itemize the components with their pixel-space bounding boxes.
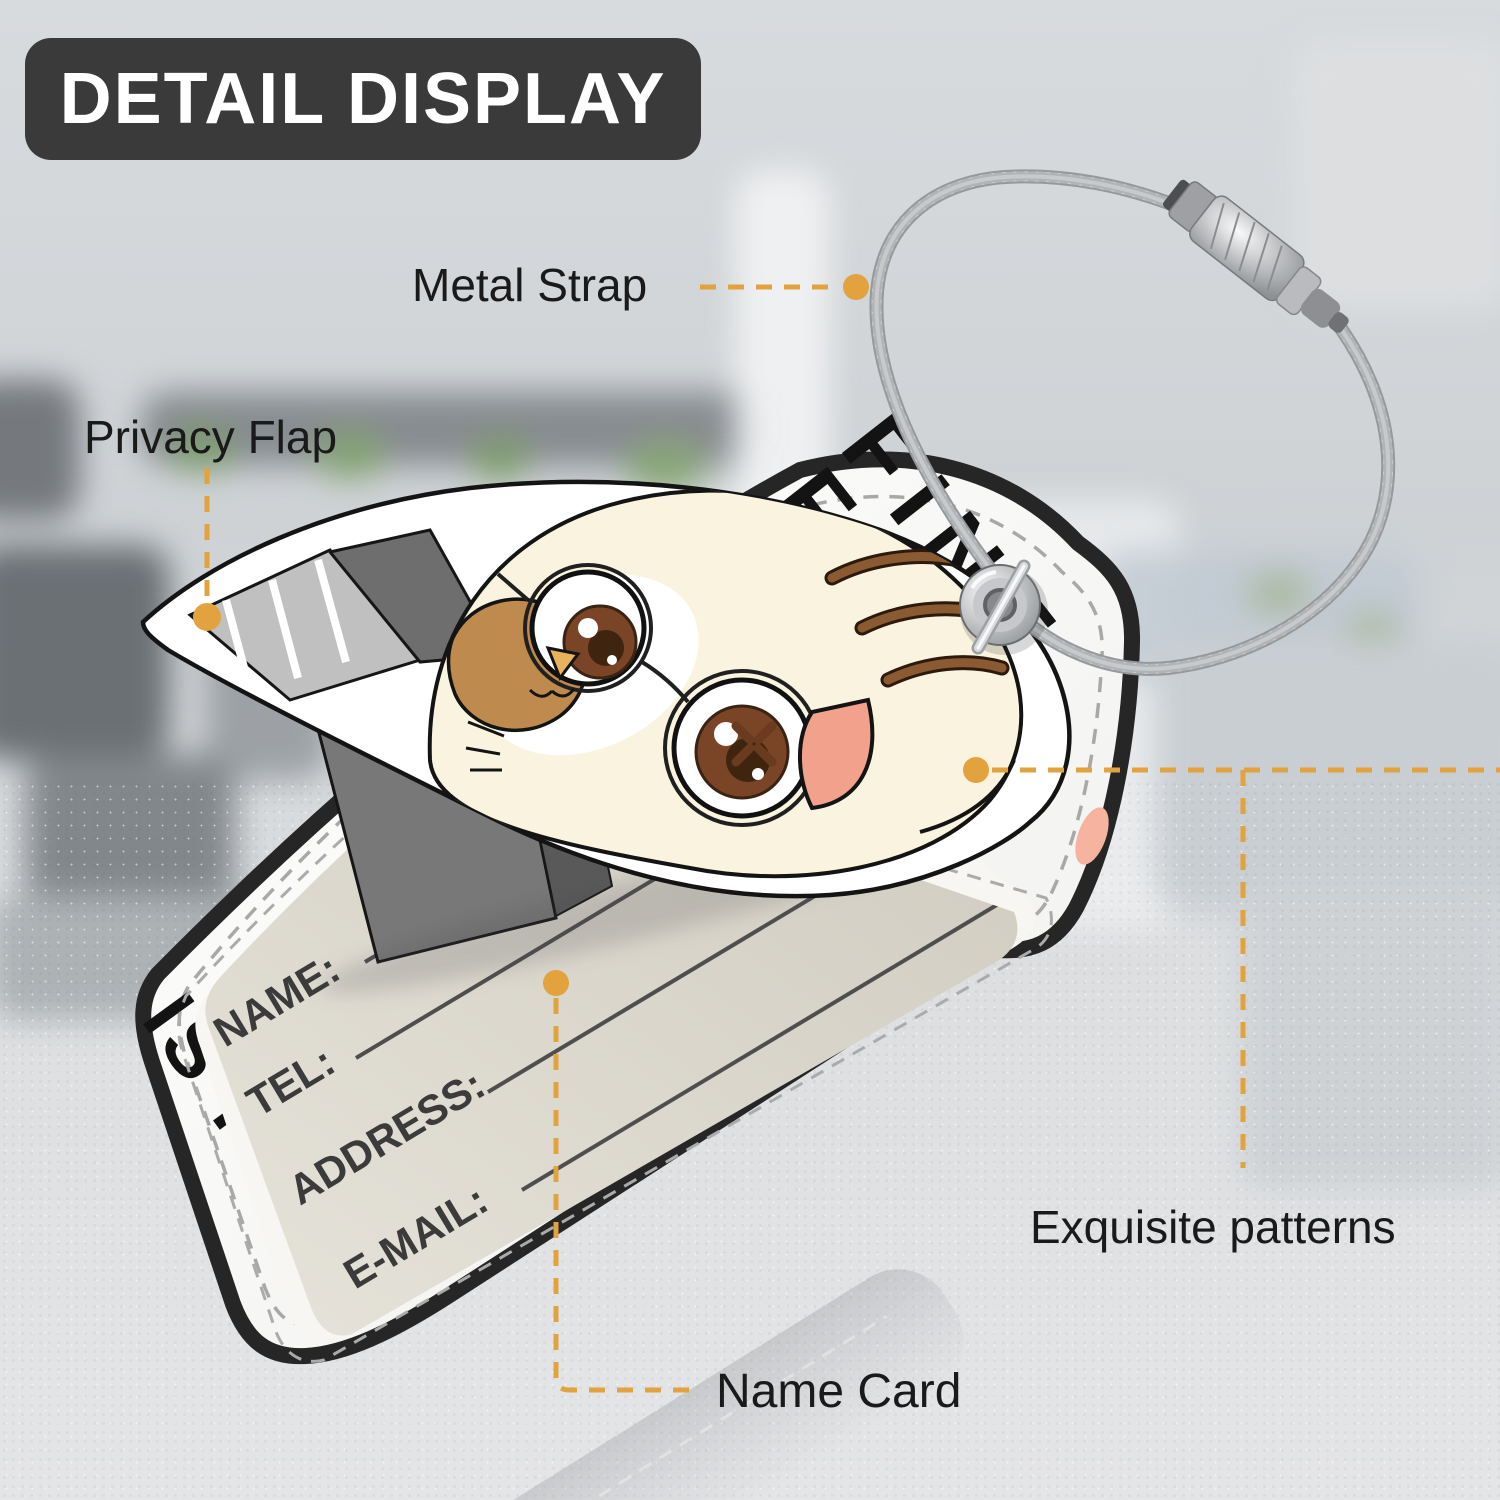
screw-clasp-icon xyxy=(1156,169,1363,348)
product-detail-page: FINE FINE IS FINE G NAME: xyxy=(0,0,1500,1500)
name-card-label: Name Card xyxy=(716,1364,961,1419)
privacy-flap-label: Privacy Flap xyxy=(84,410,337,464)
cat-eye-left xyxy=(532,572,644,684)
cat-eye-right xyxy=(674,680,810,816)
metal-strap-anchor-dot xyxy=(843,274,869,300)
privacy-flap-anchor-dot xyxy=(193,603,221,631)
product-illustration: FINE FINE IS FINE G NAME: xyxy=(0,0,1500,1500)
page-title: DETAIL DISPLAY xyxy=(60,59,667,139)
metal-strap-label: Metal Strap xyxy=(412,258,647,312)
detail-display-badge: DETAIL DISPLAY xyxy=(25,38,701,160)
exquisite-patterns-anchor-dot xyxy=(963,757,989,783)
name-card-anchor-dot xyxy=(543,970,569,996)
exquisite-patterns-label: Exquisite patterns xyxy=(1030,1200,1396,1254)
